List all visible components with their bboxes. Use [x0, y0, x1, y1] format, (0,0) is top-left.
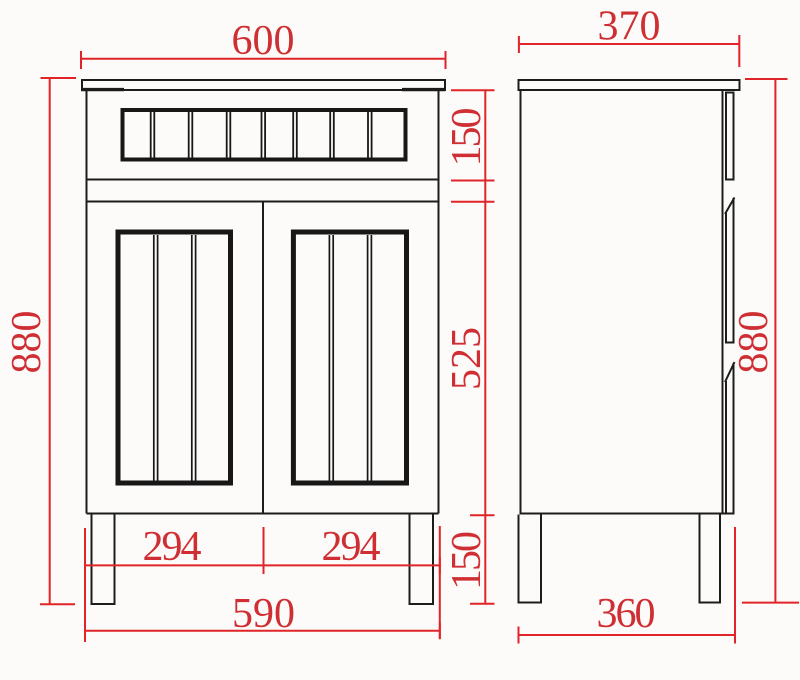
svg-text:370: 370 — [598, 4, 661, 50]
svg-text:150: 150 — [444, 532, 490, 590]
svg-text:360: 360 — [597, 591, 655, 637]
svg-text:150: 150 — [444, 109, 490, 167]
svg-text:525: 525 — [444, 327, 490, 390]
svg-text:600: 600 — [232, 18, 295, 64]
svg-text:590: 590 — [232, 591, 295, 637]
svg-text:294: 294 — [143, 524, 202, 570]
svg-text:880: 880 — [4, 311, 50, 374]
svg-text:880: 880 — [731, 311, 777, 374]
svg-text:294: 294 — [322, 524, 381, 570]
